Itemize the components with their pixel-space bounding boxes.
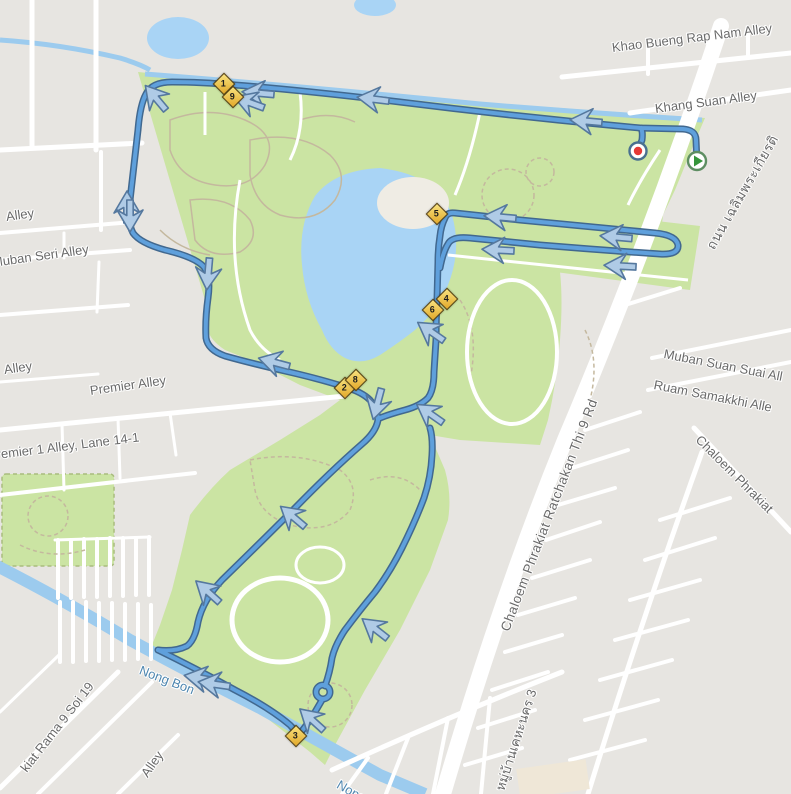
map-graphics [0, 0, 791, 794]
start-marker [688, 152, 706, 170]
finish-marker [630, 143, 647, 160]
map-canvas[interactable]: 1 9 2 8 5 4 6 3 Khao Bueng Rap Nam Alley… [0, 0, 791, 794]
